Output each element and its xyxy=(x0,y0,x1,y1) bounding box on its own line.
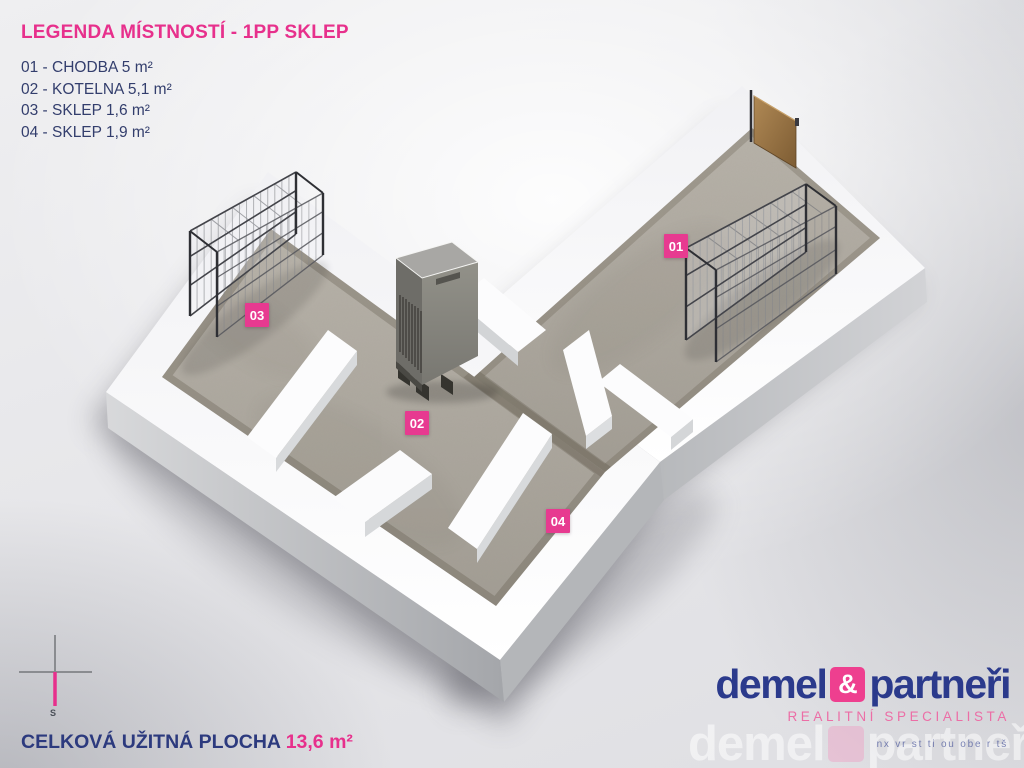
legend-item-04: 04 - SKLEP 1,9 m² xyxy=(21,122,349,144)
ampersand-tile-icon: & xyxy=(830,667,865,702)
total-area-label: CELKOVÁ UŽITNÁ PLOCHA xyxy=(21,731,286,753)
legend-items: 01 - CHODBA 5 m² 02 - KOTELNA 5,1 m² 03 … xyxy=(21,57,349,143)
compass-south-label: S xyxy=(50,708,56,718)
total-area-value: 13,6 m² xyxy=(286,731,353,753)
watermark-ampersand-tile xyxy=(828,726,864,762)
floorplan-visualization-page: LEGENDA MÍSTNOSTÍ - 1PP SKLEP 01 - CHODB… xyxy=(0,0,1024,768)
legend: LEGENDA MÍSTNOSTÍ - 1PP SKLEP 01 - CHODB… xyxy=(21,22,349,143)
compass xyxy=(19,635,92,706)
room-badge-01: 01 xyxy=(664,234,688,258)
legend-item-02: 02 - KOTELNA 5,1 m² xyxy=(21,79,349,101)
room-badge-03: 03 xyxy=(245,303,269,327)
brand-logo: demel & partneři REALITNÍ SPECIALISTA xyxy=(715,664,1010,724)
legend-item-01: 01 - CHODBA 5 m² xyxy=(21,57,349,79)
legend-title: LEGENDA MÍSTNOSTÍ - 1PP SKLEP xyxy=(21,22,349,44)
ampersand-glyph: & xyxy=(838,671,858,698)
total-area-line: CELKOVÁ UŽITNÁ PLOCHA 13,6 m² xyxy=(21,731,353,754)
room-badge-04: 04 xyxy=(546,509,570,533)
brand-tagline: nx vr st ti ou obe r tš xyxy=(877,739,1008,750)
brand-subtitle: REALITNÍ SPECIALISTA xyxy=(715,709,1010,724)
brand-word-partneri: partneři xyxy=(869,664,1010,705)
legend-item-03: 03 - SKLEP 1,6 m² xyxy=(21,100,349,122)
brand-word-demel: demel xyxy=(715,664,826,705)
room-badge-02: 02 xyxy=(405,411,429,435)
